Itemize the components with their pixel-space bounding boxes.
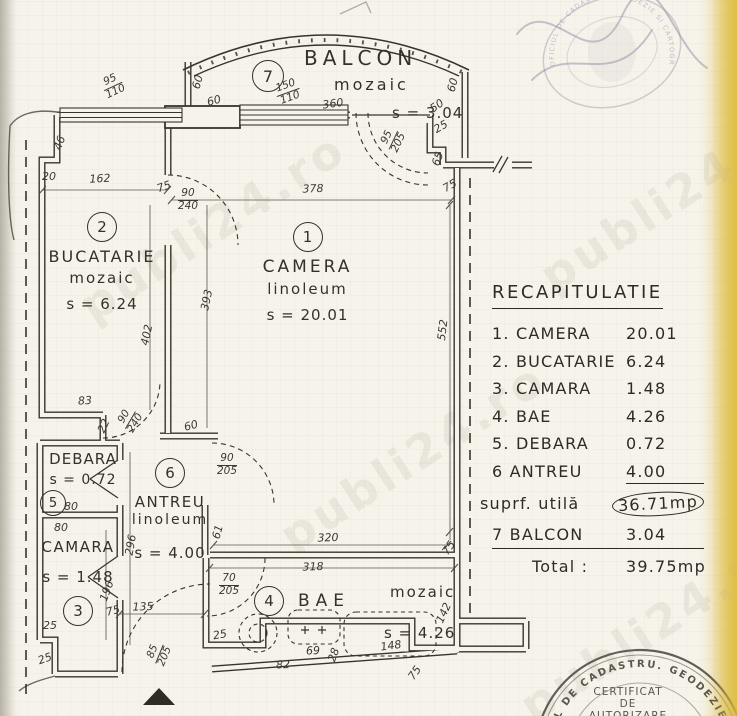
entrance-marker-icon — [143, 688, 175, 705]
room-number-badge: 6 — [155, 458, 185, 488]
room-number-badge: 3 — [63, 596, 93, 626]
recap-rows: 1. CAMERA20.012. BUCATARIE6.243. CAMARA1… — [492, 324, 704, 576]
recap-row: 6 ANTREU4.00 — [492, 462, 704, 484]
room-number-badge: 2 — [87, 212, 117, 242]
recap-row-label: 4. BAE — [492, 407, 626, 426]
dimension-label: 318 — [302, 561, 323, 573]
dimension-label: 25 — [43, 620, 57, 632]
dimension-label: 135 — [132, 601, 153, 613]
room-name: ANTREU — [135, 493, 206, 511]
recap-row-value: 36.71mp — [611, 490, 704, 519]
recap-row-value: 0.72 — [626, 434, 704, 453]
dimension-label: 69 — [306, 645, 320, 657]
recap-table: RECAPITULATIE 1. CAMERA20.012. BUCATARIE… — [492, 282, 704, 585]
window-symbol — [60, 108, 182, 122]
dimension-label: 162 — [89, 173, 111, 186]
recap-row-value: 4.00 — [626, 462, 704, 484]
dimension-label: 148 — [380, 639, 402, 653]
wall-break-icon — [493, 156, 508, 173]
scanned-floor-plan-page: publi24.ro publi24.ro publi24.ro publi24… — [0, 0, 737, 716]
recap-row-label: 5. DEBARA — [492, 434, 626, 453]
recap-row: 7 BALCON3.04 — [492, 525, 704, 549]
room-area: s = 0.72 — [49, 472, 116, 488]
room-name: CAMARA — [41, 538, 114, 556]
recap-row-value: 39.75mp — [626, 557, 704, 576]
room-finish: linoleum — [132, 512, 208, 528]
dimension-label: 552 — [436, 319, 450, 341]
recap-row: 3. CAMARA1.48 — [492, 379, 704, 398]
dimension-label: 83 — [78, 395, 93, 407]
room-number-badge: 4 — [254, 586, 284, 616]
scan-edge-right — [711, 0, 737, 716]
room-name: BUCATARIE — [49, 247, 156, 266]
recap-row-label: 2. BUCATARIE — [492, 352, 626, 371]
dimension-label: 90240 — [178, 188, 198, 212]
recap-row-value: 4.26 — [626, 407, 704, 426]
room-finish: linoleum — [267, 280, 348, 298]
room-number-badge: 1 — [293, 222, 323, 252]
dimension-label: 82 — [276, 659, 290, 671]
recap-row: 1. CAMERA20.01 — [492, 324, 704, 343]
room-name: DEBARA — [49, 450, 117, 468]
recap-row-label: 1. CAMERA — [492, 324, 626, 343]
stamp-line: AUTORIZARE — [589, 710, 667, 716]
recap-row-label: suprf. utilă — [480, 494, 620, 513]
room-label-bucatarie: 2 BUCATARIE mozaic s = 6.24 — [32, 212, 172, 313]
recap-row: suprf. utilă36.71mp — [480, 492, 704, 516]
room-area: s = 3.04 — [392, 104, 463, 122]
room-name: BAE — [298, 591, 350, 611]
recap-row: 5. DEBARA0.72 — [492, 434, 704, 453]
recap-row: 2. BUCATARIE6.24 — [492, 352, 704, 371]
dimension-label: 80 — [64, 501, 78, 513]
recap-title: RECAPITULATIE — [492, 282, 663, 309]
dimension-label: 360 — [322, 97, 344, 111]
round-stamp-bottom: NAL DE CADASTRU. GEODEZIE SI CERTIFICAT … — [535, 650, 737, 716]
dimension-label: 80 — [54, 522, 68, 534]
recap-row-value: 1.48 — [626, 379, 704, 398]
recap-row-value: 3.04 — [626, 525, 704, 544]
dimension-label: 25 — [212, 628, 228, 642]
recap-row: 4. BAE4.26 — [492, 407, 704, 426]
dimension-label: 20 — [42, 171, 56, 183]
recap-row-value: 20.01 — [626, 324, 704, 343]
room-finish: mozaic — [390, 583, 455, 601]
dimension-label: 90205 — [217, 453, 237, 477]
recap-row: Total :39.75mp — [532, 557, 704, 576]
room-area: s = 6.24 — [66, 295, 137, 313]
stamp-line: CERTIFICAT — [593, 686, 662, 698]
recap-row-value: 6.24 — [626, 352, 704, 371]
dimension-label: 70205 — [219, 573, 239, 597]
room-label-debara: 5 DEBARA s = 0.72 — [40, 450, 126, 516]
room-label-camera: 1 CAMERA linoleum s = 20.01 — [235, 222, 380, 324]
room-number-badge: 5 — [40, 490, 66, 516]
round-stamp-top: OFICIUL DE CADASTRU, GEODEZIE SI CARTOGR… — [517, 0, 707, 125]
recap-row-label: 7 BALCON — [492, 525, 626, 544]
stamp-line: DE — [620, 698, 637, 710]
recap-row-label: 6 ANTREU — [492, 462, 626, 481]
dimension-label: 378 — [302, 183, 323, 195]
room-name: BALCON — [304, 46, 417, 70]
room-area: s = 4.00 — [134, 544, 205, 562]
room-name: CAMERA — [263, 257, 353, 277]
room-finish: mozaic — [334, 75, 409, 94]
recap-row-label: Total : — [532, 557, 626, 576]
room-finish: mozaic — [69, 269, 134, 287]
room-area: s = 20.01 — [267, 306, 349, 324]
dimension-label: 320 — [317, 532, 338, 544]
recap-row-label: 3. CAMARA — [492, 379, 626, 398]
